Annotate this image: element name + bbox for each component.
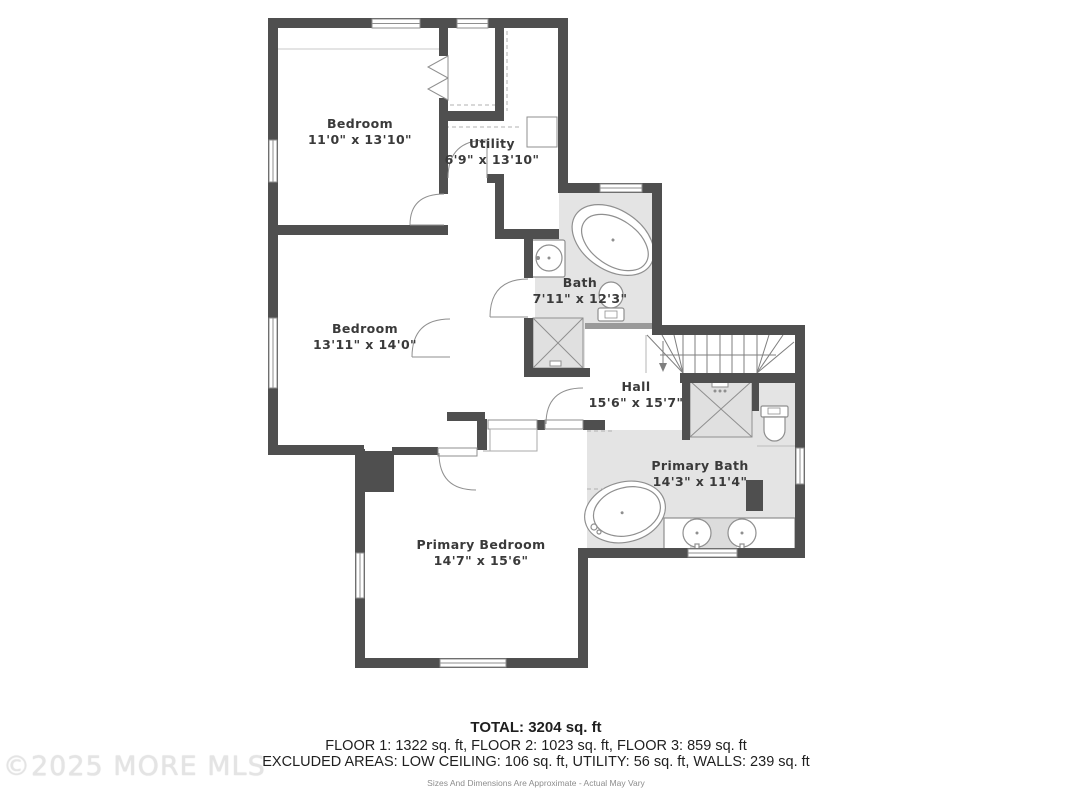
room-label-bedroom-1: Bedroom 11'0" x 13'10" bbox=[308, 116, 412, 148]
window bbox=[600, 184, 642, 192]
window bbox=[372, 19, 420, 28]
total-area-line: TOTAL: 3204 sq. ft bbox=[0, 719, 1072, 736]
bedroom-door bbox=[410, 194, 444, 225]
window bbox=[457, 19, 488, 28]
room-dimensions: 13'11" x 14'0" bbox=[313, 337, 417, 353]
window bbox=[688, 549, 737, 557]
room-name: Bedroom bbox=[308, 116, 412, 132]
floor-plan-page: Bedroom 11'0" x 13'10" Utility 6'9" x 13… bbox=[0, 0, 1072, 804]
primary-bedroom-door bbox=[438, 448, 477, 490]
window bbox=[356, 553, 364, 598]
room-dimensions: 11'0" x 13'10" bbox=[308, 132, 412, 148]
primary-shower bbox=[690, 381, 752, 437]
room-name: Primary Bath bbox=[651, 458, 748, 474]
room-dimensions: 6'9" x 13'10" bbox=[445, 152, 540, 168]
hall-door bbox=[545, 388, 583, 429]
room-dimensions: 14'7" x 15'6" bbox=[416, 553, 545, 569]
room-name: Hall bbox=[589, 379, 684, 395]
primary-toilet bbox=[761, 406, 788, 441]
stairs-down-arrow bbox=[659, 341, 667, 372]
stairs bbox=[646, 335, 794, 373]
bath-door bbox=[490, 279, 528, 317]
room-name: Bedroom bbox=[313, 321, 417, 337]
bath-shower bbox=[533, 318, 583, 368]
window bbox=[269, 140, 277, 182]
room-label-primary-bedroom: Primary Bedroom 14'7" x 15'6" bbox=[416, 537, 545, 569]
window bbox=[269, 318, 277, 388]
room-name: Utility bbox=[445, 136, 540, 152]
bedroom-door bbox=[412, 319, 450, 357]
room-name: Primary Bedroom bbox=[416, 537, 545, 553]
room-label-bath: Bath 7'11" x 12'3" bbox=[533, 275, 628, 307]
closet-bifold-door bbox=[428, 56, 448, 100]
shower-head-icon bbox=[550, 361, 561, 366]
room-label-bedroom-2: Bedroom 13'11" x 14'0" bbox=[313, 321, 417, 353]
room-dimensions: 7'11" x 12'3" bbox=[533, 291, 628, 307]
floor-plan-drawing bbox=[0, 0, 1072, 804]
bath-sink bbox=[531, 240, 565, 277]
window bbox=[440, 659, 506, 667]
room-name: Bath bbox=[533, 275, 628, 291]
mls-watermark: ©2025 MORE MLS bbox=[3, 751, 266, 782]
chimney-block bbox=[361, 451, 394, 492]
room-dimensions: 14'3" x 11'4" bbox=[651, 474, 748, 490]
room-label-utility: Utility 6'9" x 13'10" bbox=[445, 136, 540, 168]
window bbox=[796, 448, 804, 484]
room-label-hall: Hall 15'6" x 15'7" bbox=[589, 379, 684, 411]
room-label-primary-bath: Primary Bath 14'3" x 11'4" bbox=[651, 458, 748, 490]
cased-opening bbox=[488, 420, 537, 451]
room-dimensions: 15'6" x 15'7" bbox=[589, 395, 684, 411]
vanity bbox=[664, 518, 795, 550]
